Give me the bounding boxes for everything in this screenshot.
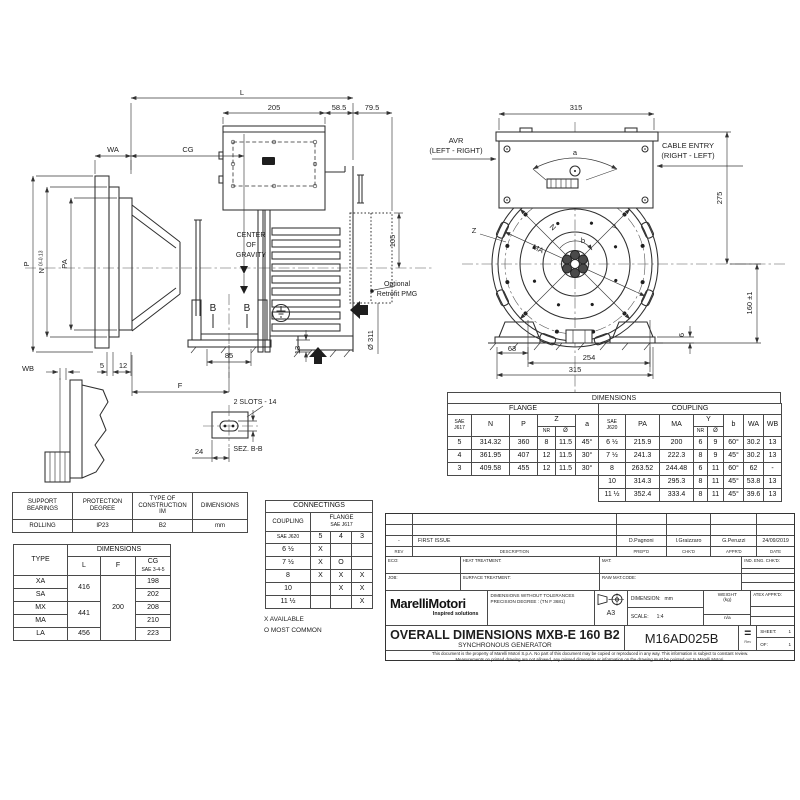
table-cell: 361.95 (472, 450, 510, 463)
connectings-col-5: 5 (311, 532, 331, 544)
callout-b: b (581, 236, 585, 245)
col-y-dia: Ø (708, 427, 724, 437)
dim-254: 254 (583, 353, 596, 362)
scale-value: 1:4 (657, 614, 664, 620)
table-cell: 8 (599, 463, 626, 476)
table-cell: X (352, 570, 373, 583)
marelli-mark (262, 157, 275, 165)
marelli-logo: MarelliMotori (386, 591, 487, 611)
col-n: N (472, 415, 510, 437)
dim-n: N0/-0.13 (37, 250, 46, 273)
table-cell: 6 ½ (599, 437, 626, 450)
flange-group-header: FLANGE (448, 404, 599, 415)
table-cell: 10 (266, 583, 311, 596)
rev-apprd: G.Peruzzi (711, 536, 757, 546)
col-a: a (576, 415, 599, 437)
tolerances-line2: PRECISION DEGREE : (TN F 3681) (488, 598, 594, 604)
table-cell: 198 (136, 576, 171, 589)
col-l: L (68, 557, 101, 576)
label-apprd: APPR'D (711, 547, 757, 556)
revision-row-empty (386, 514, 794, 525)
dim-63: 63 (508, 344, 516, 353)
drawing-code: M16AD025B (625, 626, 739, 650)
table-cell: 30.2 (744, 450, 764, 463)
title-row: OVERALL DIMENSIONS MXB-E 160 B2 SYNCHRON… (386, 626, 794, 651)
col-p: P (510, 415, 538, 437)
disclaimer-row: This document is the property of Marelli… (386, 651, 794, 662)
table-row: 5314.32360811.545° (448, 437, 599, 450)
equals-symbol: = (739, 626, 756, 640)
table-cell: 6 ½ (266, 544, 311, 557)
cooling-fins (272, 228, 340, 331)
coupling-group-header: COUPLING (599, 404, 782, 415)
col-sae-j617: SAEJ617 (448, 415, 472, 437)
table-row: 4361.954071211.530° (448, 450, 599, 463)
table-cell: 223 (136, 628, 171, 641)
table-cell (331, 596, 352, 609)
table-cell: 352.4 (626, 489, 660, 502)
surface-treatment-label: SURFACE TREATMENT: (463, 575, 511, 580)
dim-cg: CG (182, 145, 193, 154)
table-row: 11 ½352.4333.481145°39.613 (599, 489, 782, 502)
disclaimer-line1: This document is the property of Marelli… (386, 651, 794, 657)
dim-6: 6 (677, 333, 686, 337)
front-view: 315 a 275 160 ±1 6 63 254 315 AVR (LEFT … (429, 103, 788, 392)
dim-wa: WA (107, 145, 119, 154)
col-z-nr: NR (538, 427, 556, 437)
connectings-col-4: 4 (331, 532, 352, 544)
table-cell: 333.4 (660, 489, 694, 502)
table-cell: 8 (266, 570, 311, 583)
col-z: Z (538, 415, 576, 427)
atex-label: ATEX APPR'D: (753, 592, 782, 597)
table-cell: 360 (510, 437, 538, 450)
avr-label: AVR (449, 136, 464, 145)
connectings-legend-common: O MOST COMMON (264, 627, 322, 634)
tolerances-line1: DIMENSIONS WITHOUT TOLERANCES (488, 591, 594, 598)
table-row: 6 ½215.92006960°30.213 (599, 437, 782, 450)
section-mark-b: B (210, 303, 217, 314)
table-row: 8XXX (266, 570, 373, 583)
table-cell: 407 (510, 450, 538, 463)
dim-12: 12 (119, 361, 127, 370)
table-cell: 30° (576, 463, 599, 476)
table-cell: 244.48 (660, 463, 694, 476)
disclaimer-line2: Measurements on printed drawing are not … (386, 657, 794, 663)
table-cell: 8 (538, 437, 556, 450)
lifting-pin (357, 175, 364, 203)
table-cell: 7 ½ (599, 450, 626, 463)
weight-label: WEIGHT (704, 591, 750, 598)
table-cell: MA (14, 615, 68, 628)
first-angle-projection-icon (596, 591, 626, 608)
table-cell: 13 (764, 489, 782, 502)
table-cell: 202 (136, 589, 171, 602)
callout-z: Z (472, 226, 477, 235)
table-cell: 30° (576, 450, 599, 463)
table-row: 3409.584551211.530° (448, 463, 599, 476)
callout-ma: MA (531, 242, 545, 255)
table-cell: 455 (510, 463, 538, 476)
flange-bell (95, 176, 202, 348)
dim-dia-311: Ø 311 (366, 330, 375, 350)
table-row: 10XX (266, 583, 373, 596)
table-cell: 13 (764, 476, 782, 489)
logo-tagline: Inspired solutions (386, 611, 487, 617)
table-cell: X (352, 583, 373, 596)
dim-275: 275 (715, 192, 724, 205)
table-row: 10314.3295.381145°53.813 (599, 476, 782, 489)
sheet-label: SHEET: (760, 629, 776, 634)
sheet-cell: SHEET:1 OF:1 (757, 626, 794, 650)
table-cell: 11.5 (556, 437, 576, 450)
callout-n: N (548, 222, 558, 232)
job-label: JOB: (388, 575, 398, 580)
table-cell: 12 (538, 463, 556, 476)
table-cell: 11 (708, 489, 724, 502)
connectings-table: CONNECTINGS COUPLING FLANGESAE J617 SAE … (265, 500, 373, 609)
table-row: 8263.52244.4861160°62- (599, 463, 782, 476)
table-cell: 6 (694, 437, 708, 450)
table-cell: X (352, 596, 373, 609)
label-description: DESCRIPTION (413, 547, 617, 556)
coupling-hub (562, 251, 589, 278)
table-cell: B2 (133, 520, 193, 533)
table-cell: 409.58 (472, 463, 510, 476)
col-z-dia: Ø (556, 427, 576, 437)
table-cell: 7 ½ (266, 557, 311, 570)
table-cell: 30.2 (744, 437, 764, 450)
table-cell: ROLLING (13, 520, 73, 533)
support-bearings-table: SUPPORT BEARINGS PROTECTION DEGREE TYPE … (12, 492, 248, 533)
flange-table: FLANGE SAEJ617 N P Z a NR Ø 5314.3236081… (447, 403, 599, 476)
table-cell: 3 (448, 463, 472, 476)
col-sae-j620: SAEJ620 (599, 415, 626, 437)
eco-row: ECO: HEAT TREATMENT: MAT: IND. ENG. CHK'… (386, 557, 794, 574)
table-cell: 39.6 (744, 489, 764, 502)
connectings-title: CONNECTINGS (266, 501, 373, 513)
ind-eng-chkd-label: IND. ENG. CHK'D: (744, 558, 780, 563)
equals-caption: Rev (739, 640, 756, 644)
rev-value: - (386, 536, 413, 546)
cog-label: CENTER (237, 232, 266, 239)
table-cell: 4 (448, 450, 472, 463)
dim-315-top: 315 (570, 103, 583, 112)
col-wa: WA (744, 415, 764, 437)
table-cell: 13 (764, 450, 782, 463)
table-cell: X (311, 557, 331, 570)
table-cell: mm (193, 520, 248, 533)
table-cell: 215.9 (626, 437, 660, 450)
revision-row-first-issue: - FIRST ISSUE D.Pagnoni I.Graizzaro G.Pe… (386, 536, 794, 547)
side-view: Optional Retrofit PMG CENTER OF GRAVITY (22, 88, 432, 482)
col-y: Y (694, 415, 724, 427)
table-row: MX441208 (14, 602, 171, 615)
label-chkd: CHK'D (667, 547, 712, 556)
table-row: XA416200198 (14, 576, 171, 589)
cog-label: OF (246, 242, 256, 249)
table-row: LA456223 (14, 628, 171, 641)
table-cell (331, 544, 352, 557)
connectings-sae-j620: SAE J620 (266, 532, 311, 544)
projection-cell: A3 (595, 591, 628, 625)
col-support-bearings: SUPPORT BEARINGS (13, 493, 73, 520)
label-date: DATE (757, 547, 794, 556)
table-cell (352, 544, 373, 557)
logo-cell: MarelliMotori Inspired solutions (386, 591, 488, 625)
label-prepd: PREP'D (617, 547, 667, 556)
connectings-legend-available: X AVAILABLE (264, 616, 304, 623)
table-cell: 12 (538, 450, 556, 463)
slots-note: 2 SLOTS - 14 (234, 399, 277, 406)
dimension-label: DIMENSION: (631, 596, 661, 602)
table-cell: 263.52 (626, 463, 660, 476)
col-type-of-construction: TYPE OF CONSTRUCTION IM (133, 493, 193, 520)
job-row: JOB: SURFACE TREATMENT: RAW MAT.CODE: (386, 574, 794, 591)
table-row: 7 ½XO (266, 557, 373, 570)
terminal-box (219, 126, 325, 210)
section-mark-b: B (244, 303, 251, 314)
revision-symbol-cell: = Rev (739, 626, 757, 650)
table-cell: 9 (708, 450, 724, 463)
table-cell: IP23 (73, 520, 133, 533)
drawing-subtitle: SYNCHRONOUS GENERATOR (386, 642, 624, 649)
table-cell: SA (14, 589, 68, 602)
type-dimensions-table: TYPE DIMENSIONS L F CGSAE 3-4-5 XA416200… (13, 544, 171, 641)
table-cell: 13 (764, 437, 782, 450)
rev-chkd: I.Graizzaro (667, 536, 712, 546)
mat-label: MAT: (602, 558, 611, 563)
col-ma: MA (660, 415, 694, 437)
connectings-flange-header: FLANGESAE J617 (311, 513, 373, 532)
table-cell: 200 (660, 437, 694, 450)
table-cell: 314.32 (472, 437, 510, 450)
pmg-label: Retrofit PMG (377, 291, 417, 298)
table-cell: X (311, 570, 331, 583)
cog-label: GRAVITY (236, 252, 267, 259)
table-row: 11 ½X (266, 596, 373, 609)
info-row: MarelliMotori Inspired solutions DIMENSI… (386, 591, 794, 626)
dim-13: 13 (293, 346, 302, 354)
table-cell: 62 (744, 463, 764, 476)
table-cell: 11.5 (556, 463, 576, 476)
type-dimensions-header: DIMENSIONS (68, 545, 171, 557)
dim-105: 105 (388, 235, 397, 248)
table-cell: 60° (724, 463, 744, 476)
table-cell: - (764, 463, 782, 476)
col-y-nr: NR (694, 427, 708, 437)
dim-5: 5 (100, 361, 104, 370)
table-cell: MX (14, 602, 68, 615)
heat-treatment-label: HEAT TREATMENT: (463, 558, 502, 563)
table-cell: 5 (448, 437, 472, 450)
table-cell: 45° (724, 450, 744, 463)
table-cell: 8 (694, 489, 708, 502)
table-cell: 10 (599, 476, 626, 489)
rev-prepd: D.Pagnoni (617, 536, 667, 546)
dim-f: F (178, 381, 183, 390)
of-value: 1 (788, 642, 791, 647)
col-cg: CGSAE 3-4-5 (136, 557, 171, 576)
atex-cell: ATEX APPR'D: (751, 591, 794, 625)
sheet-value: 1 (788, 629, 791, 634)
table-cell: 11 ½ (266, 596, 311, 609)
table-cell: 210 (136, 615, 171, 628)
rev-date: 24/09/2019 (757, 536, 794, 546)
table-cell: X (331, 570, 352, 583)
table-cell: X (311, 544, 331, 557)
dimension-value: mm (665, 596, 673, 602)
table-cell: 11.5 (556, 450, 576, 463)
dim-160: 160 ±1 (745, 292, 754, 315)
dim-pa: PA (60, 259, 69, 268)
table-cell: 45° (724, 489, 744, 502)
section-label: SEZ. B-B (233, 446, 263, 453)
table-row: 7 ½241.3222.38945°30.213 (599, 450, 782, 463)
dim-p: P (22, 261, 31, 266)
dim-85: 85 (225, 351, 233, 360)
dim-wb: WB (22, 364, 34, 373)
drawing-title-cell: OVERALL DIMENSIONS MXB-E 160 B2 SYNCHRON… (386, 626, 625, 650)
table-cell (311, 596, 331, 609)
weight-cell: WEIGHT (kg) n/a (704, 591, 751, 625)
col-f: F (101, 557, 136, 576)
weight-value: n/a (704, 616, 750, 621)
scale-label: SCALE: (631, 614, 649, 620)
col-pa: PA (626, 415, 660, 437)
engineering-drawing-sheet: { "colors": {"line": "#2f2f2f", "paper":… (0, 0, 800, 800)
table-cell: 8 (694, 450, 708, 463)
format-a3: A3 (595, 610, 627, 617)
table-cell: O (331, 557, 352, 570)
dim-l: L (240, 88, 244, 97)
table-cell: 314.3 (626, 476, 660, 489)
terminal-box-front (496, 128, 658, 208)
table-cell (352, 557, 373, 570)
dim-58-5: 58.5 (332, 103, 347, 112)
table-cell: 441 (68, 602, 101, 628)
title-block: - FIRST ISSUE D.Pagnoni I.Graizzaro G.Pe… (385, 513, 795, 661)
table-cell: 11 ½ (599, 489, 626, 502)
drawing-title: OVERALL DIMENSIONS MXB-E 160 B2 (386, 628, 624, 642)
table-cell: 11 (708, 476, 724, 489)
connectings-col-3: 3 (352, 532, 373, 544)
label-rev: REV (386, 547, 413, 556)
dim-79-5: 79.5 (365, 103, 380, 112)
table-cell: X (331, 583, 352, 596)
table-cell: 45° (724, 476, 744, 489)
avr-connector (547, 179, 578, 188)
table-cell: 456 (68, 628, 101, 641)
side-view-dimensions (33, 98, 403, 396)
table-cell: 8 (694, 476, 708, 489)
connectings-coupling-header: COUPLING (266, 513, 311, 532)
tolerances-cell: DIMENSIONS WITHOUT TOLERANCES PRECISION … (488, 591, 595, 625)
table-cell: LA (14, 628, 68, 641)
optional-pmg-box (350, 213, 395, 303)
rev-description: FIRST ISSUE (413, 536, 617, 546)
col-dimensions: DIMENSIONS (193, 493, 248, 520)
col-protection-degree: PROTECTION DEGREE (73, 493, 133, 520)
cable-entry-label: CABLE ENTRY (662, 141, 714, 150)
table-cell: 60° (724, 437, 744, 450)
table-cell: 200 (101, 576, 136, 641)
col-type: TYPE (14, 545, 68, 576)
dimension-scale-cell: DIMENSION:mm SCALE:1:4 (628, 591, 705, 625)
weight-unit: (kg) (704, 598, 750, 603)
dim-315-bottom: 315 (569, 365, 582, 374)
table-cell: 11 (708, 463, 724, 476)
raw-mat-code-label: RAW MAT.CODE: (602, 575, 636, 580)
dim-205: 205 (268, 103, 281, 112)
coupling-table: COUPLING SAEJ620 PA MA Y b WA WB NR Ø 6 … (598, 403, 782, 502)
table-cell: 6 (694, 463, 708, 476)
table-cell: 208 (136, 602, 171, 615)
table-row: 6 ½X (266, 544, 373, 557)
dim-24: 24 (195, 447, 203, 456)
avr-label: (LEFT - RIGHT) (429, 146, 483, 155)
eco-label: ECO: (388, 558, 399, 563)
table-cell: 295.3 (660, 476, 694, 489)
table-cell: 241.3 (626, 450, 660, 463)
table-cell: 9 (708, 437, 724, 450)
col-b: b (724, 415, 744, 437)
col-wb: WB (764, 415, 782, 437)
table-cell: XA (14, 576, 68, 589)
of-label: OF: (760, 642, 768, 647)
table-cell: 45° (576, 437, 599, 450)
table-cell: 222.3 (660, 450, 694, 463)
table-cell (311, 583, 331, 596)
table-cell: 416 (68, 576, 101, 602)
revision-row-empty (386, 525, 794, 536)
revision-column-labels: REV DESCRIPTION PREP'D CHK'D APPR'D DATE (386, 547, 794, 557)
table-row: ROLLINGIP23B2mm (13, 520, 248, 533)
shaft-end-detail (45, 368, 108, 482)
cable-entry-label: (RIGHT - LEFT) (661, 151, 715, 160)
pmg-label: Optional (384, 281, 411, 288)
table-cell: 53.8 (744, 476, 764, 489)
